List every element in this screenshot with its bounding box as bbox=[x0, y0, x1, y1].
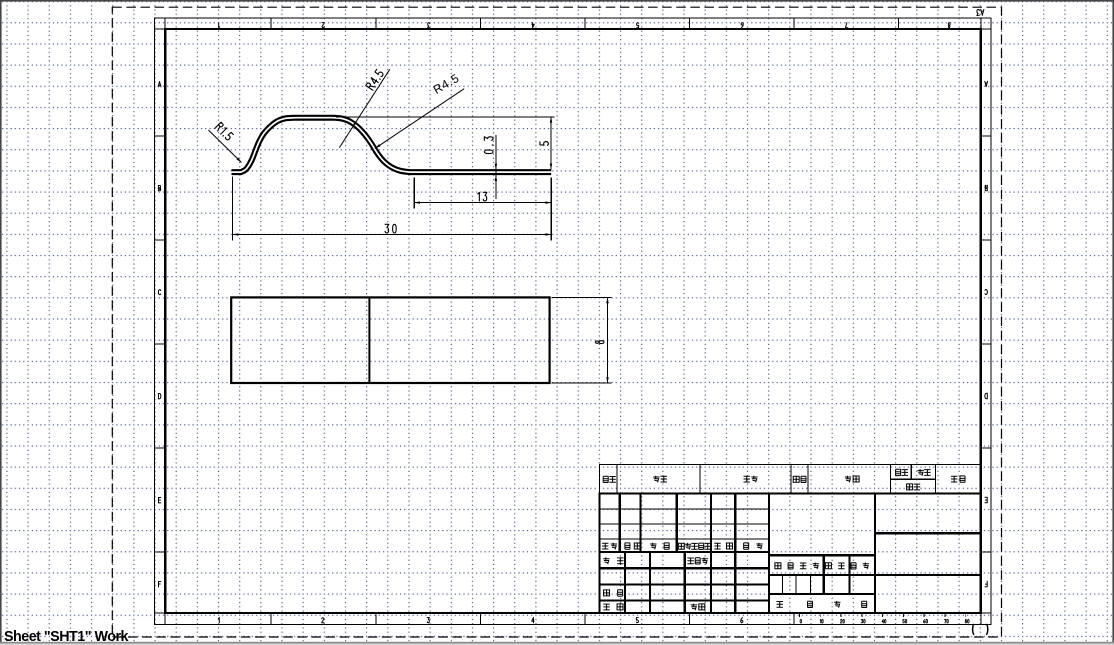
svg-text:Sheet "SHT1" Work: Sheet "SHT1" Work bbox=[4, 629, 129, 645]
